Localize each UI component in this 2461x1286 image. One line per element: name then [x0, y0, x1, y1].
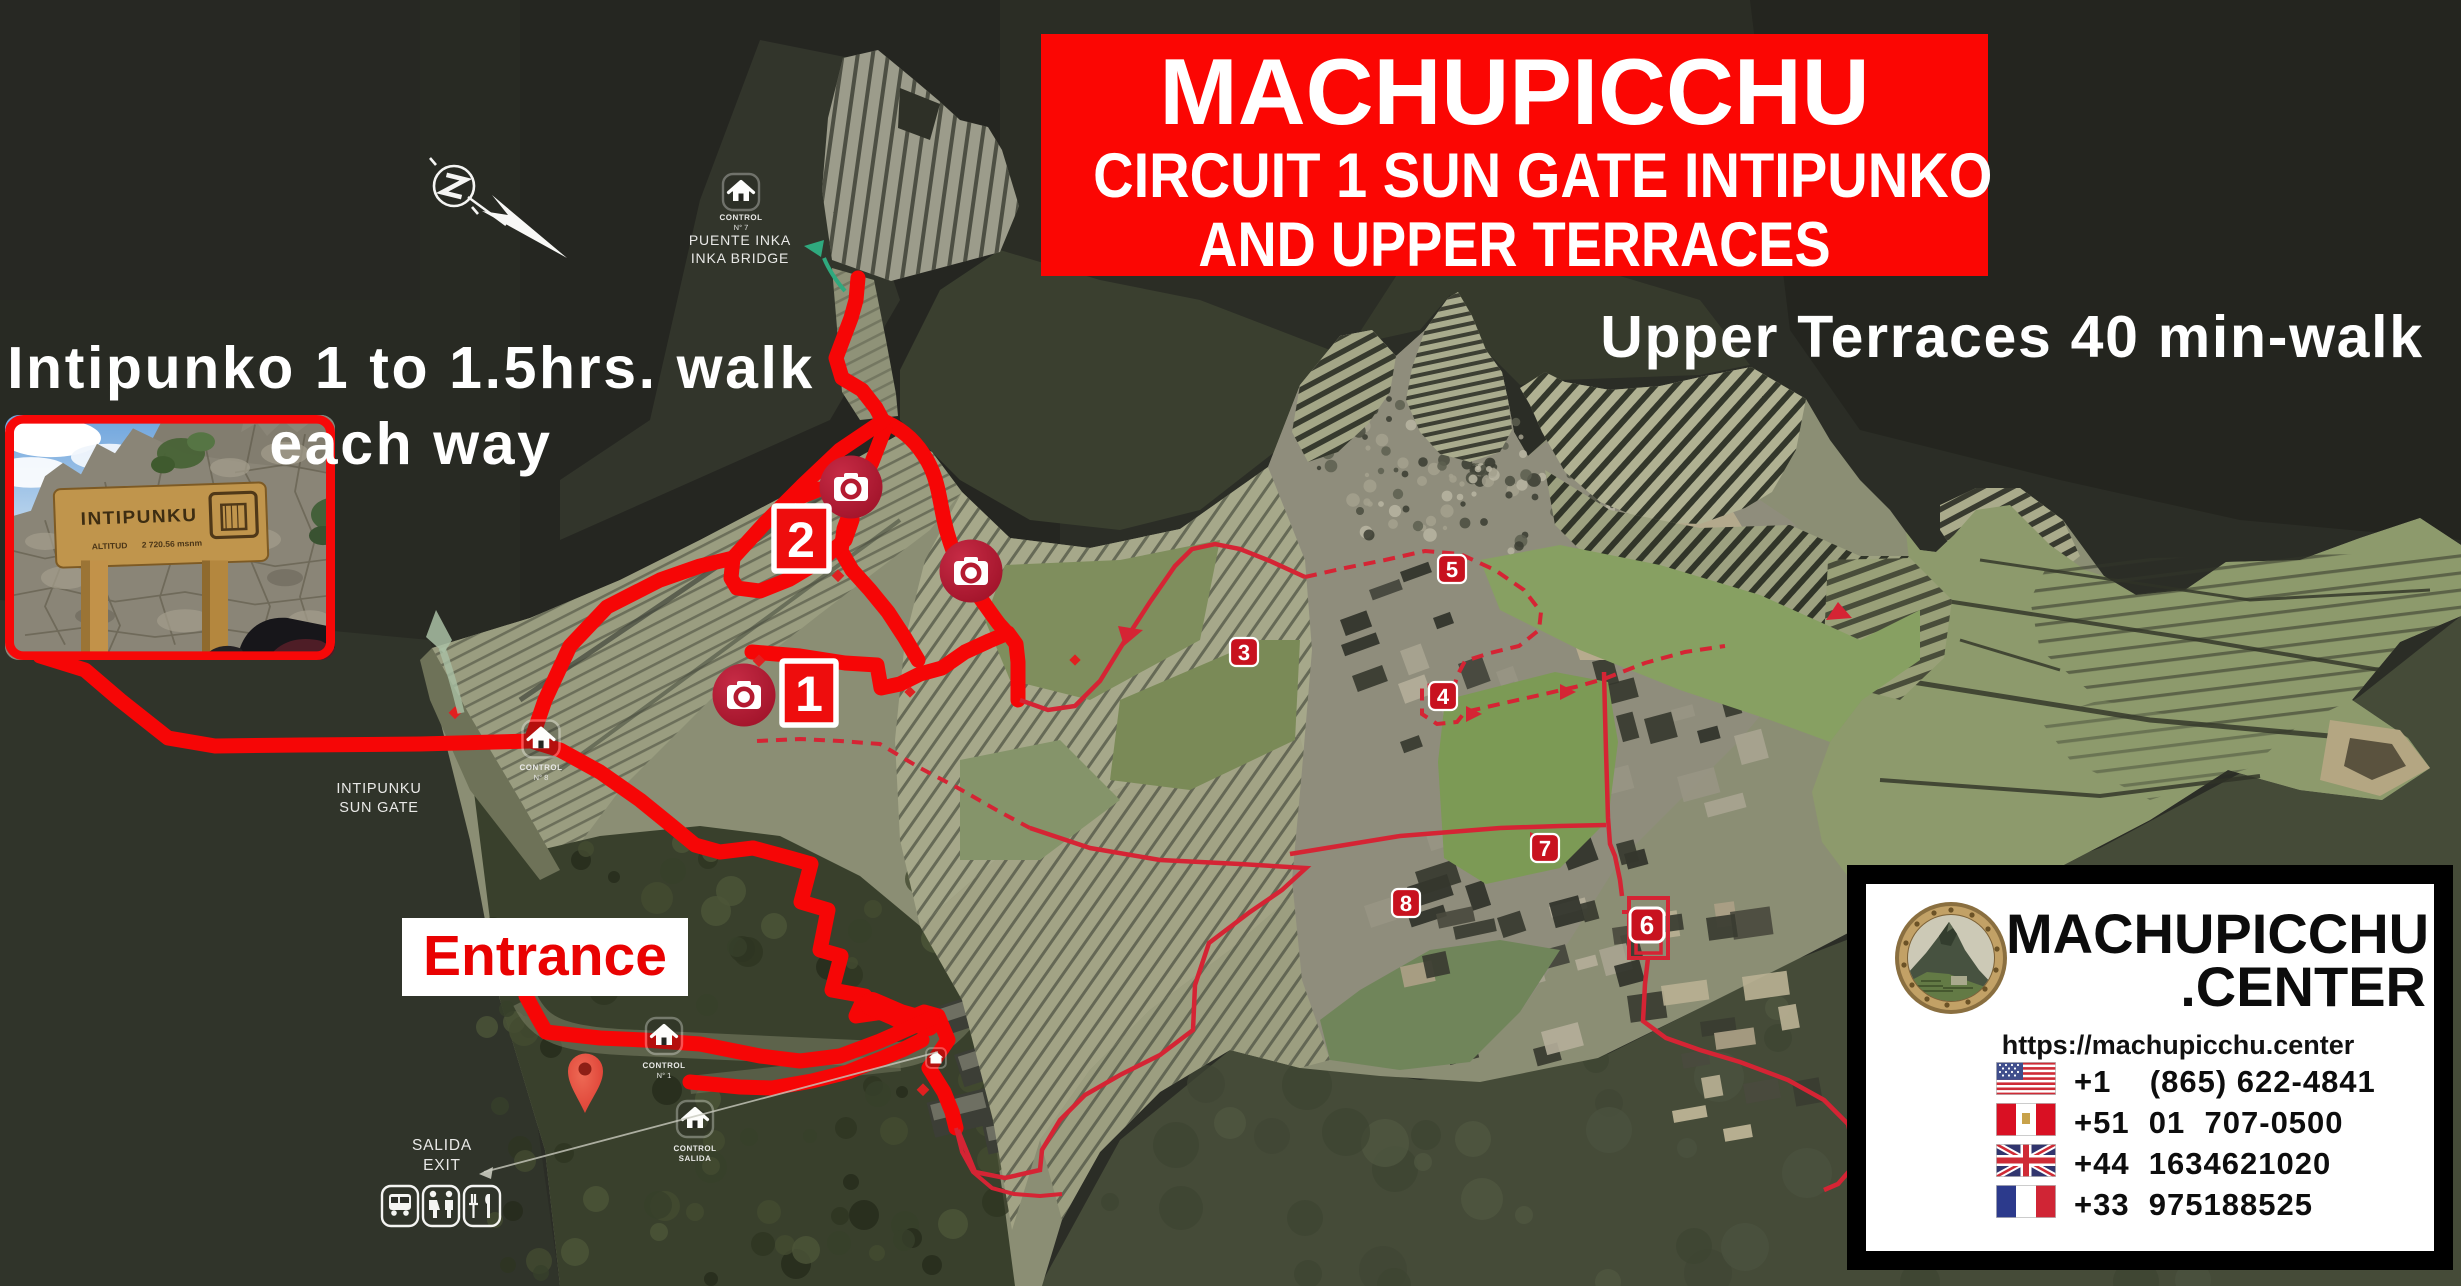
svg-text:CONTROL: CONTROL — [642, 1061, 685, 1070]
svg-text:5: 5 — [1446, 557, 1458, 582]
svg-text:ALTITUD: ALTITUD — [92, 540, 128, 551]
svg-text:3: 3 — [1238, 640, 1250, 665]
svg-text:INTIPUNKU: INTIPUNKU — [80, 504, 198, 528]
svg-text:4: 4 — [1437, 684, 1450, 709]
svg-text:N° 1: N° 1 — [657, 1071, 672, 1080]
svg-text:CONTROL: CONTROL — [519, 763, 562, 772]
svg-text:SALIDA: SALIDA — [679, 1154, 712, 1163]
svg-text:2: 2 — [787, 512, 815, 568]
svg-text:8: 8 — [1400, 891, 1412, 916]
svg-text:CONTROL: CONTROL — [719, 213, 762, 222]
svg-text:2 720.56 msnm: 2 720.56 msnm — [142, 538, 203, 550]
svg-text:1: 1 — [795, 666, 823, 722]
svg-text:7: 7 — [1539, 836, 1551, 861]
svg-text:N° 8: N° 8 — [534, 773, 549, 782]
svg-text:6: 6 — [1640, 910, 1654, 940]
svg-text:CONTROL: CONTROL — [673, 1144, 716, 1153]
